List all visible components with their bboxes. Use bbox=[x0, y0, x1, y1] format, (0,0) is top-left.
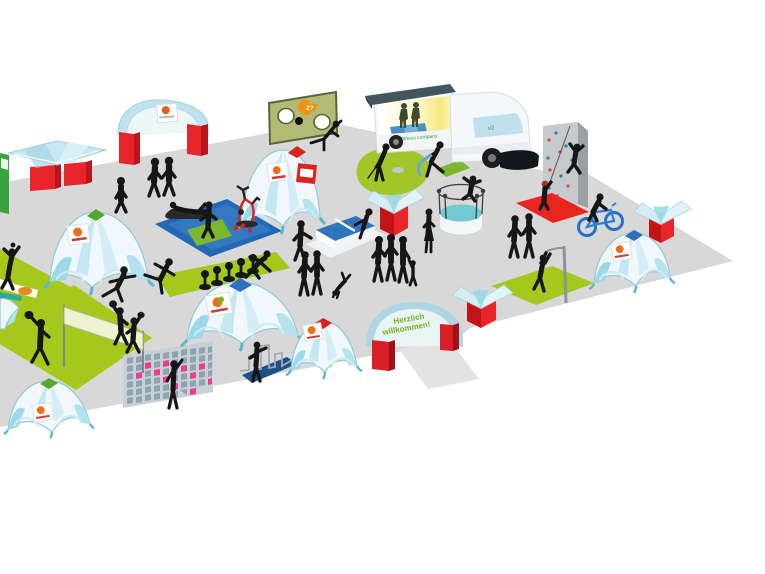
svg-text:2?: 2? bbox=[306, 105, 314, 112]
svg-text:v2: v2 bbox=[488, 126, 495, 132]
